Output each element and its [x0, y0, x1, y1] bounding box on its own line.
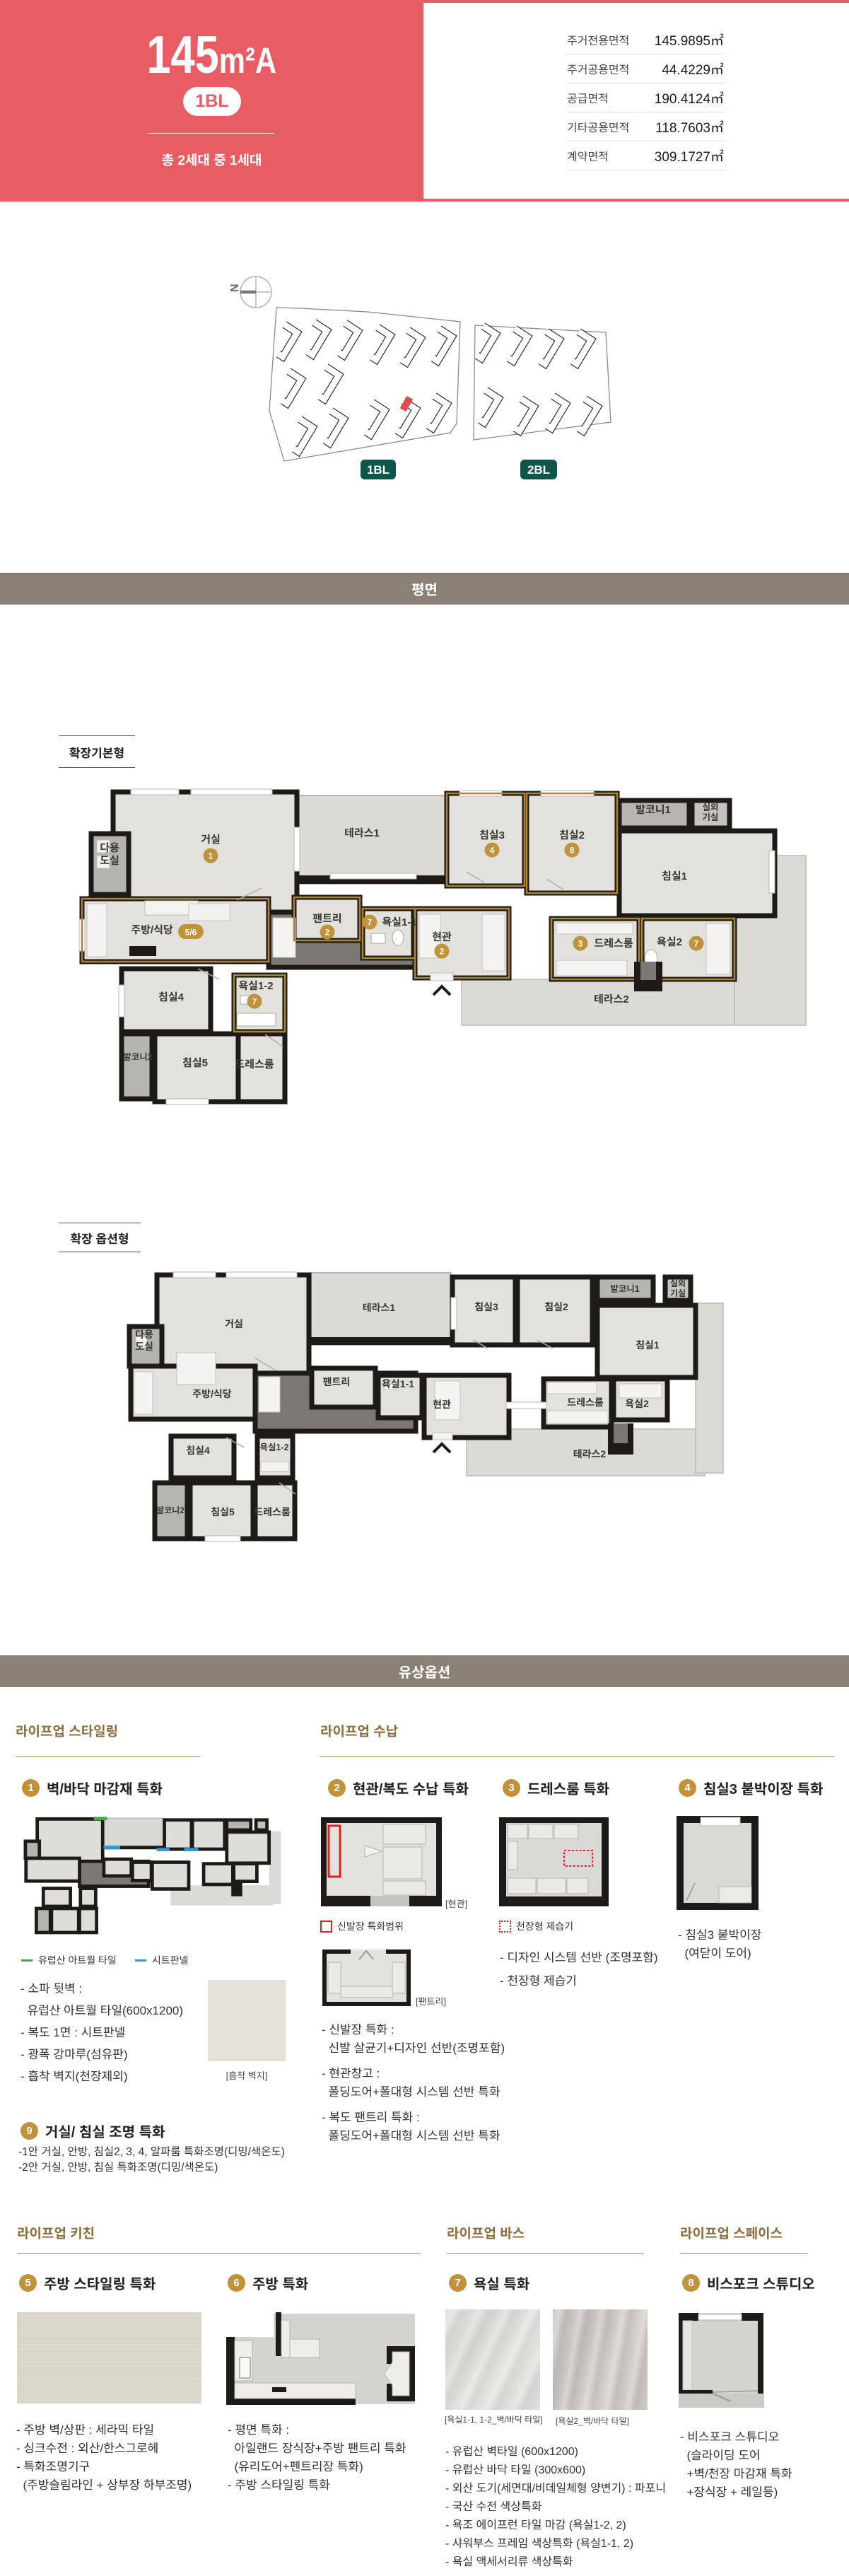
- svg-text:침실3: 침실3: [479, 829, 505, 841]
- svg-text:침실4: 침실4: [158, 991, 185, 1003]
- svg-text:현관: 현관: [432, 931, 452, 943]
- svg-text:실외: 실외: [670, 1278, 686, 1288]
- svg-text:거실: 거실: [225, 1318, 243, 1329]
- svg-text:드레스룸: 드레스룸: [567, 1397, 604, 1408]
- svg-text:팬트리: 팬트리: [312, 913, 341, 925]
- svg-text:욕실1-1: 욕실1-1: [382, 1378, 414, 1389]
- svg-text:테라스1: 테라스1: [344, 827, 380, 839]
- svg-text:침실2: 침실2: [544, 1301, 568, 1312]
- svg-text:실외: 실외: [702, 803, 718, 812]
- svg-text:기실: 기실: [702, 812, 718, 822]
- svg-text:욕실1-2: 욕실1-2: [238, 980, 273, 992]
- svg-text:7: 7: [252, 997, 257, 1007]
- svg-text:침실3: 침실3: [474, 1301, 498, 1312]
- svg-text:2BL: 2BL: [527, 463, 550, 477]
- svg-text:드레스룸: 드레스룸: [594, 938, 633, 950]
- svg-text:2: 2: [325, 928, 330, 938]
- svg-text:욕실2: 욕실2: [657, 936, 682, 948]
- svg-text:욕실2: 욕실2: [625, 1398, 649, 1409]
- svg-text:N: N: [229, 284, 241, 292]
- svg-text:8: 8: [570, 846, 575, 856]
- svg-text:침실5: 침실5: [211, 1506, 235, 1517]
- svg-text:드레스룸: 드레스룸: [235, 1059, 274, 1071]
- svg-text:발코니1: 발코니1: [636, 804, 671, 816]
- svg-text:발코니2: 발코니2: [156, 1505, 185, 1515]
- svg-text:다용: 다용: [100, 842, 119, 854]
- svg-text:발코니1: 발코니1: [610, 1284, 640, 1294]
- svg-text:침실4: 침실4: [186, 1445, 210, 1456]
- svg-text:침실1: 침실1: [662, 870, 687, 882]
- svg-text:침실5: 침실5: [182, 1057, 208, 1069]
- svg-text:2: 2: [440, 947, 445, 957]
- svg-text:침실2: 침실2: [559, 829, 585, 841]
- svg-text:7: 7: [694, 939, 699, 949]
- svg-text:현관: 현관: [433, 1399, 451, 1410]
- svg-text:테라스1: 테라스1: [363, 1302, 396, 1313]
- svg-text:도실: 도실: [135, 1341, 153, 1352]
- svg-text:1BL: 1BL: [367, 463, 390, 477]
- svg-text:발코니2: 발코니2: [123, 1052, 153, 1062]
- svg-text:주방/식당: 주방/식당: [192, 1388, 232, 1399]
- svg-text:1: 1: [209, 851, 213, 861]
- svg-text:테라스2: 테라스2: [594, 993, 629, 1006]
- svg-text:테라스2: 테라스2: [573, 1448, 607, 1459]
- svg-text:욕실1-1: 욕실1-1: [382, 916, 416, 928]
- svg-text:7: 7: [368, 918, 373, 928]
- svg-text:4: 4: [490, 846, 495, 856]
- svg-text:기실: 기실: [670, 1288, 686, 1298]
- svg-text:주방/식당: 주방/식당: [131, 924, 173, 936]
- svg-text:도실: 도실: [100, 855, 119, 867]
- svg-text:팬트리: 팬트리: [323, 1376, 351, 1387]
- svg-text:드레스룸: 드레스룸: [254, 1506, 291, 1517]
- svg-text:욕실1-2: 욕실1-2: [259, 1443, 288, 1452]
- svg-text:다용: 다용: [135, 1329, 153, 1340]
- svg-text:거실: 거실: [201, 834, 221, 846]
- svg-text:5/6: 5/6: [185, 928, 197, 938]
- svg-text:3: 3: [578, 939, 583, 949]
- svg-text:침실1: 침실1: [636, 1339, 660, 1351]
